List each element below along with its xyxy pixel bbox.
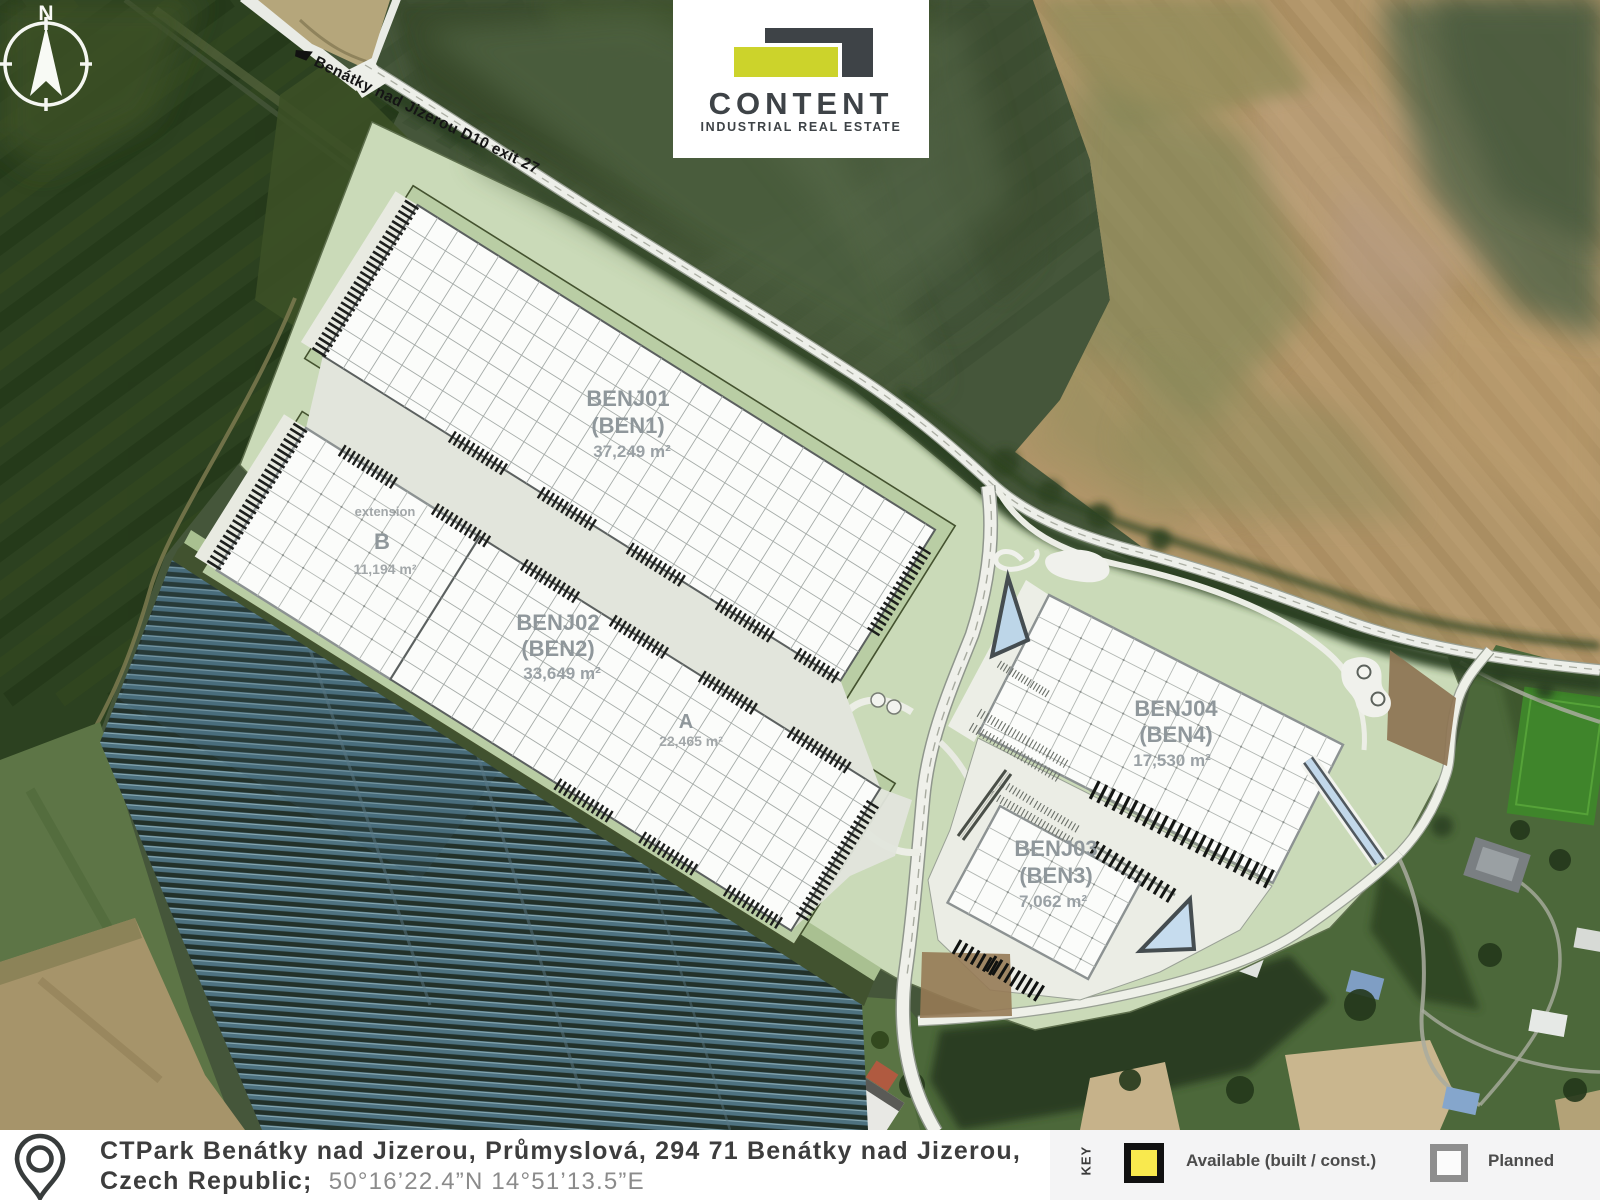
svg-text:11,194 m²: 11,194 m² (353, 561, 416, 577)
svg-text:BENJ01: BENJ01 (586, 386, 669, 411)
svg-text:BENJ03: BENJ03 (1014, 836, 1097, 861)
svg-text:B: B (374, 529, 390, 554)
svg-text:(BEN4): (BEN4) (1139, 722, 1212, 747)
svg-text:(BEN3): (BEN3) (1019, 863, 1092, 888)
svg-text:33,649 m²: 33,649 m² (523, 664, 601, 683)
svg-text:(BEN1): (BEN1) (591, 413, 664, 438)
svg-text:BENJ02: BENJ02 (516, 610, 599, 635)
svg-text:(BEN2): (BEN2) (521, 636, 594, 661)
svg-text:17,530 m²: 17,530 m² (1133, 751, 1211, 770)
svg-text:extension: extension (355, 504, 416, 519)
svg-text:7,062 m²: 7,062 m² (1019, 892, 1087, 911)
svg-text:A: A (679, 711, 693, 733)
svg-text:37,249 m²: 37,249 m² (593, 442, 671, 461)
svg-text:22,465 m²: 22,465 m² (659, 733, 723, 749)
svg-text:BENJ04: BENJ04 (1134, 696, 1218, 721)
svg-text:N: N (38, 2, 53, 25)
